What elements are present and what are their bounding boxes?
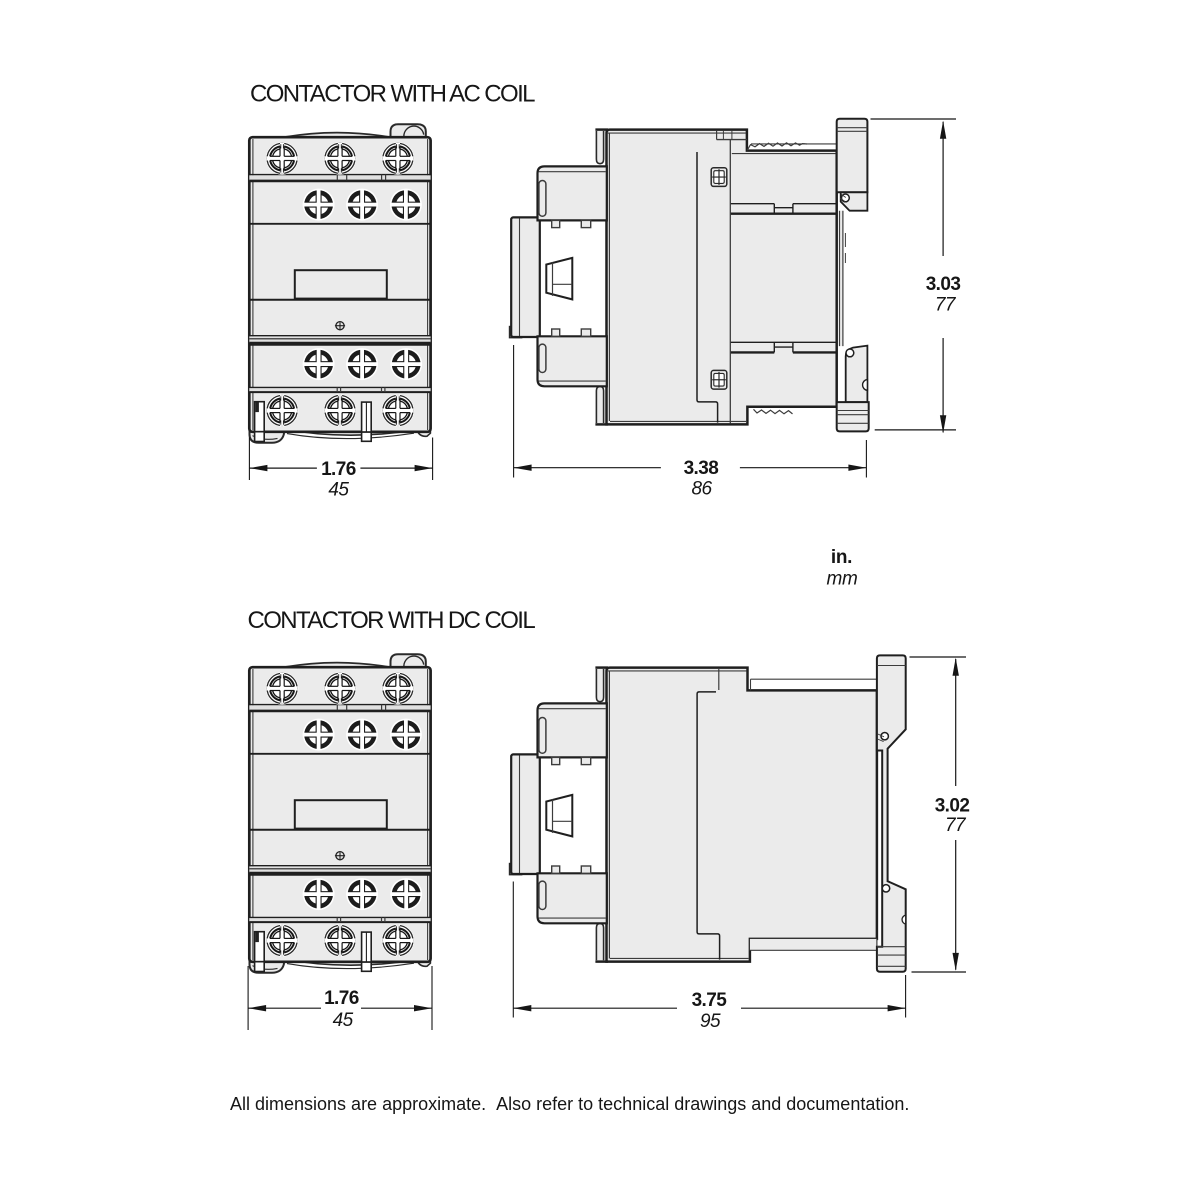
svg-text:CONTACTOR WITH AC COIL: CONTACTOR WITH AC COIL (250, 81, 535, 108)
svg-text:All dimensions are approximate: All dimensions are approximate. Also ref… (230, 1094, 909, 1114)
svg-text:3.75: 3.75 (692, 990, 728, 1011)
svg-text:1.76: 1.76 (324, 988, 359, 1009)
svg-text:1.76: 1.76 (321, 459, 356, 480)
svg-text:CONTACTOR WITH DC COIL: CONTACTOR WITH DC COIL (248, 607, 536, 634)
svg-text:3.02: 3.02 (935, 795, 970, 816)
svg-text:3.03: 3.03 (926, 274, 961, 295)
svg-text:77: 77 (945, 815, 967, 836)
svg-text:in.: in. (831, 547, 852, 568)
svg-text:mm: mm (826, 569, 857, 590)
svg-text:45: 45 (328, 479, 349, 500)
svg-text:95: 95 (700, 1011, 721, 1032)
svg-text:77: 77 (935, 294, 957, 315)
svg-text:3.38: 3.38 (684, 458, 719, 479)
svg-text:45: 45 (333, 1010, 354, 1031)
svg-text:86: 86 (692, 478, 713, 499)
